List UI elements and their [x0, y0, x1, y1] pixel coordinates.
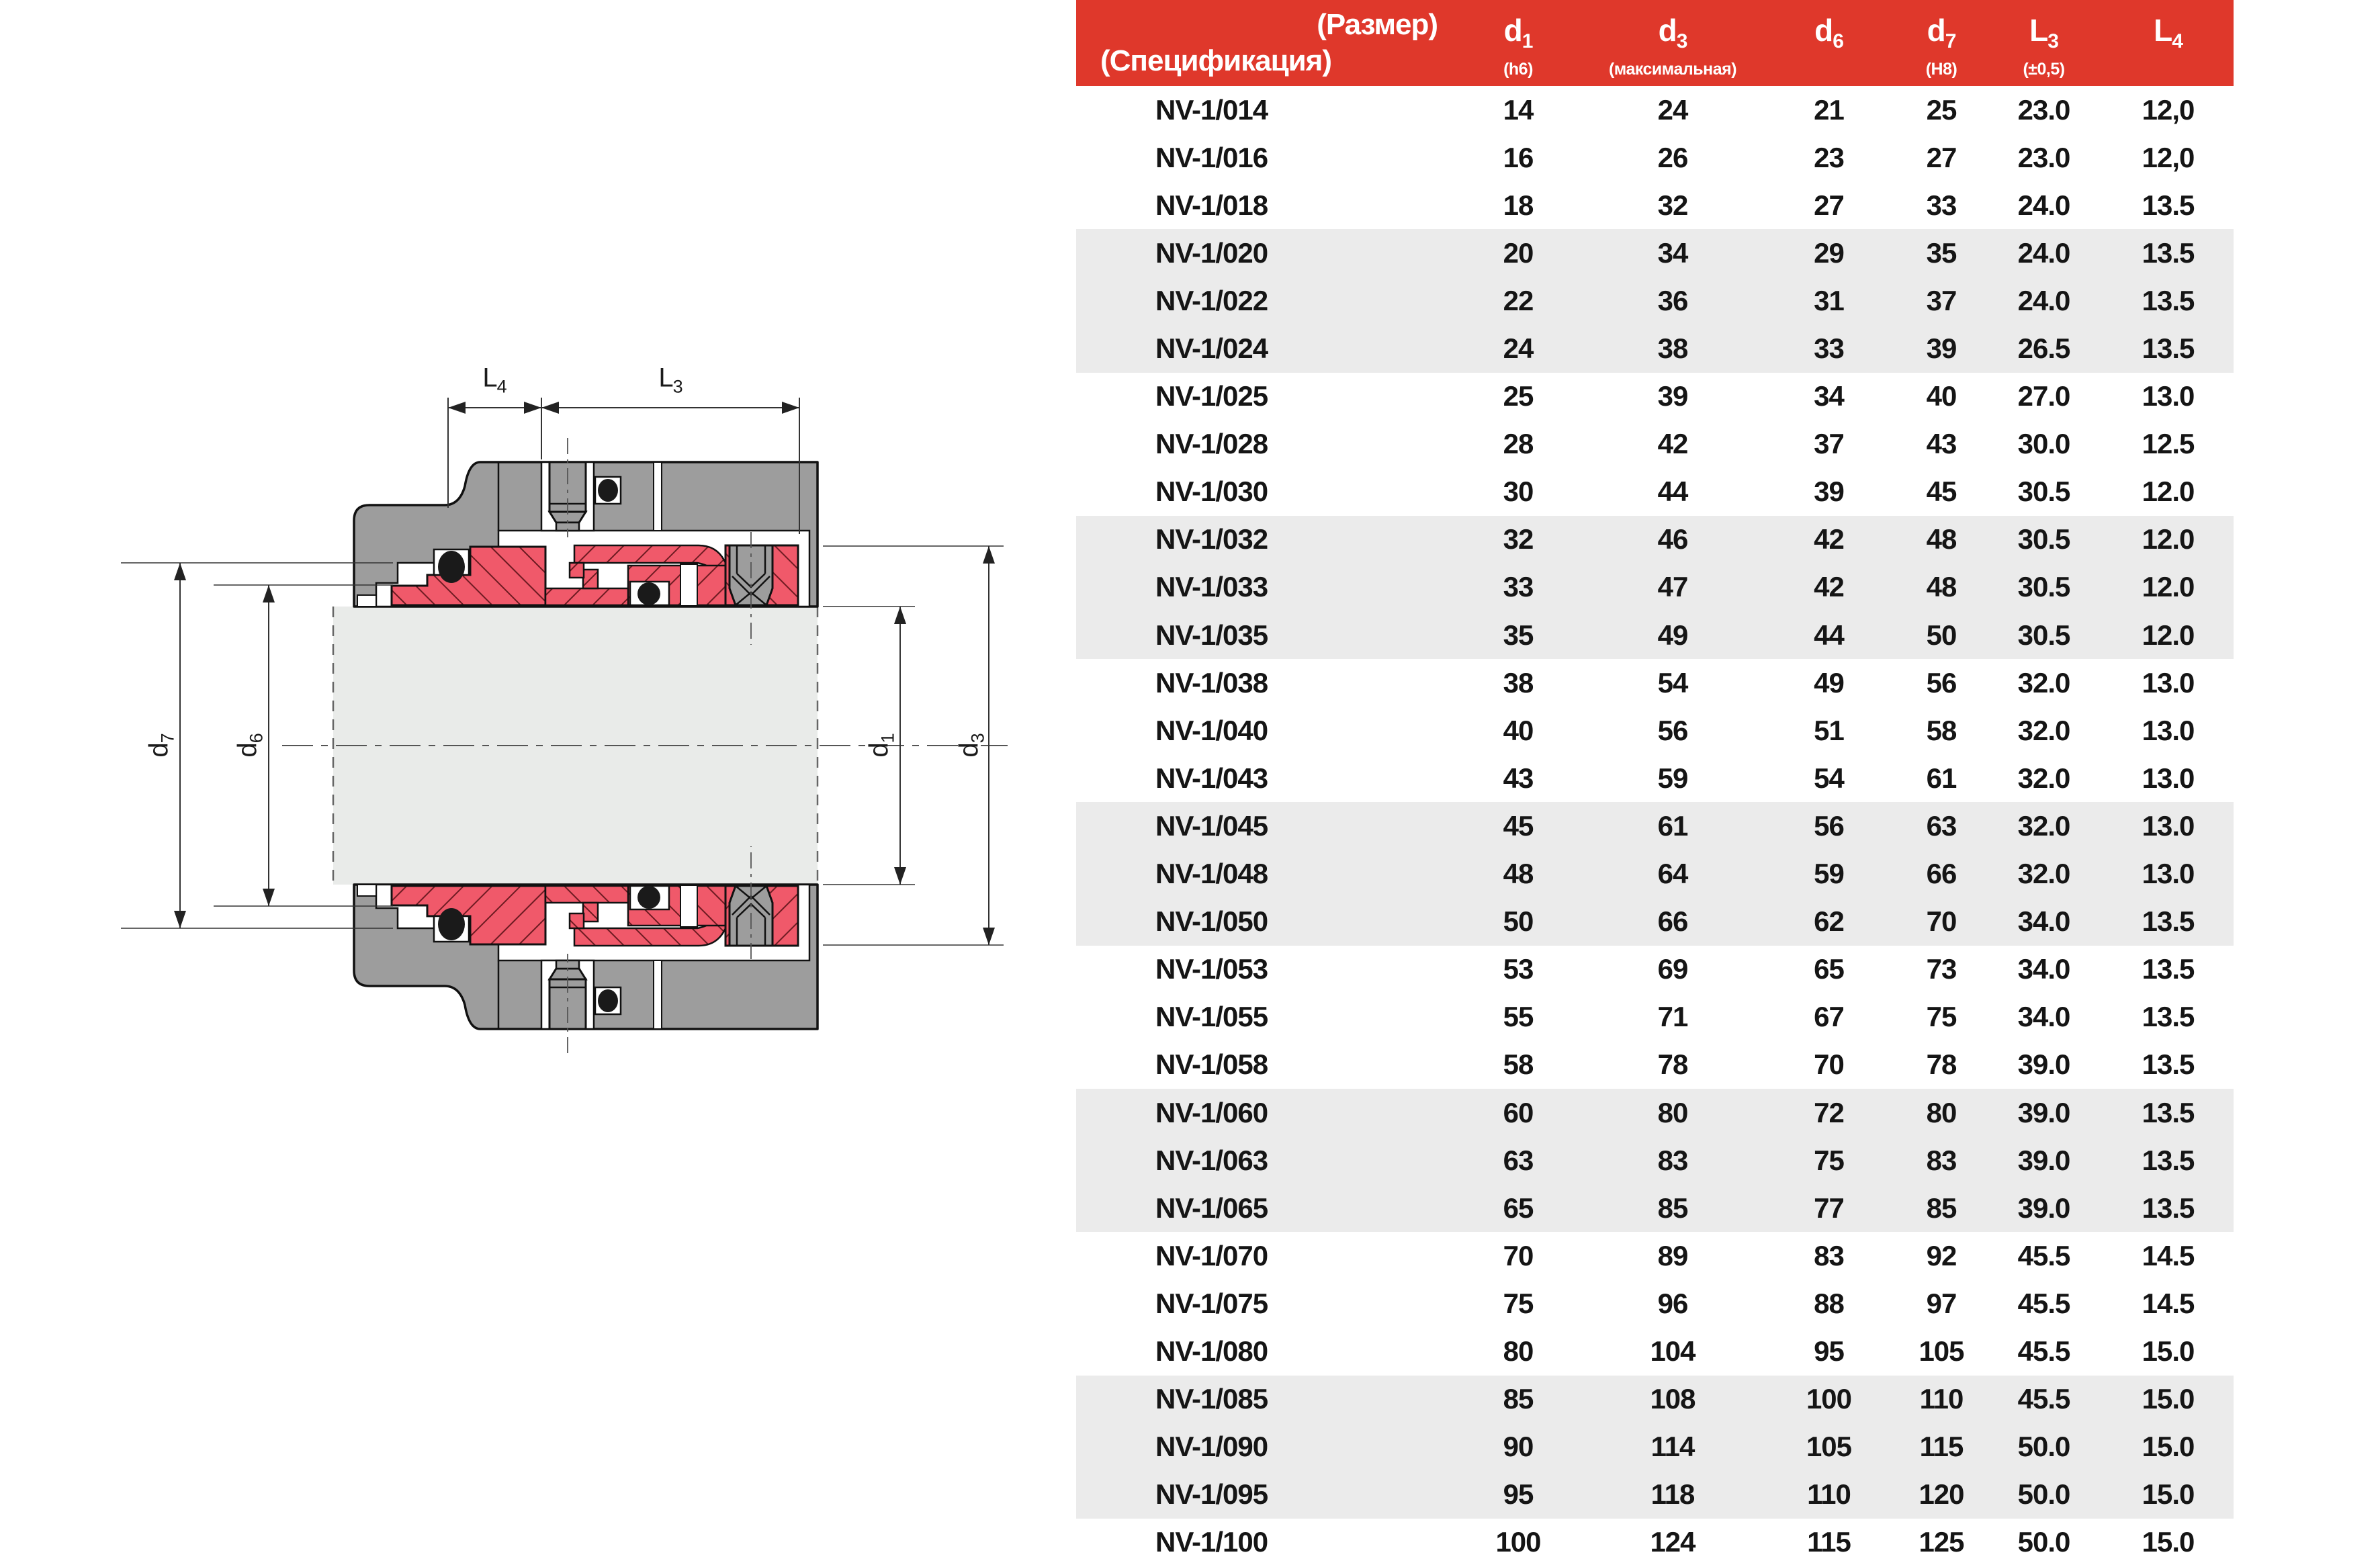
dim-label-L4: L4 [482, 363, 506, 398]
table-row: NV-1/080801049510545.515.0 [1076, 1327, 2234, 1375]
cell-d6: 67 [1760, 1001, 1898, 1033]
cell-size: NV-1/038 [1076, 667, 1451, 699]
cell-d1: 55 [1451, 1001, 1585, 1033]
cell-d3: 118 [1585, 1478, 1760, 1511]
cell-d3: 24 [1585, 94, 1760, 126]
cell-d7: 125 [1898, 1526, 1985, 1558]
cell-l3: 39.0 [1985, 1097, 2103, 1129]
cell-d3: 108 [1585, 1383, 1760, 1415]
cell-l4: 15.0 [2103, 1526, 2234, 1558]
cell-d1: 22 [1451, 285, 1585, 317]
cell-d3: 36 [1585, 285, 1760, 317]
cell-size: NV-1/050 [1076, 905, 1451, 938]
cell-l4: 12.5 [2103, 428, 2234, 460]
cell-d1: 90 [1451, 1431, 1585, 1463]
cell-d6: 62 [1760, 905, 1898, 938]
cell-size: NV-1/058 [1076, 1048, 1451, 1081]
cell-size: NV-1/014 [1076, 94, 1451, 126]
dim-label-L3: L3 [658, 363, 682, 398]
cell-size: NV-1/060 [1076, 1097, 1451, 1129]
dim-label-d1: d1 [865, 733, 899, 757]
cell-l3: 39.0 [1985, 1048, 2103, 1081]
cell-d6: 70 [1760, 1048, 1898, 1081]
cell-d6: 115 [1760, 1526, 1898, 1558]
cell-l4: 13.5 [2103, 189, 2234, 222]
cell-size: NV-1/045 [1076, 810, 1451, 842]
cell-size: NV-1/035 [1076, 619, 1451, 652]
cell-l3: 50.0 [1985, 1526, 2103, 1558]
cell-size: NV-1/033 [1076, 571, 1451, 603]
cell-d3: 104 [1585, 1335, 1760, 1368]
cell-l4: 13.5 [2103, 953, 2234, 985]
cell-size: NV-1/063 [1076, 1145, 1451, 1177]
cell-l4: 13.5 [2103, 1097, 2234, 1129]
cell-d7: 37 [1898, 285, 1985, 317]
table-row: NV-1/0555571677534.013.5 [1076, 993, 2234, 1041]
cell-size: NV-1/024 [1076, 332, 1451, 365]
header-size-line1: (Размер) [1100, 7, 1438, 43]
cell-l4: 12.0 [2103, 571, 2234, 603]
cell-d7: 33 [1898, 189, 1985, 222]
cell-d6: 88 [1760, 1288, 1898, 1320]
cell-l4: 12.0 [2103, 619, 2234, 652]
table-row: NV-1/0202034293524.013.5 [1076, 229, 2234, 277]
cell-l3: 45.5 [1985, 1383, 2103, 1415]
cell-d3: 49 [1585, 619, 1760, 652]
cell-l4: 15.0 [2103, 1431, 2234, 1463]
table-row: NV-1/0282842374330.012.5 [1076, 420, 2234, 468]
cell-d7: 48 [1898, 571, 1985, 603]
cell-l3: 30.5 [1985, 619, 2103, 652]
cell-d7: 97 [1898, 1288, 1985, 1320]
cell-size: NV-1/025 [1076, 380, 1451, 412]
cell-l4: 13.5 [2103, 1145, 2234, 1177]
cell-d1: 33 [1451, 571, 1585, 603]
cell-d1: 100 [1451, 1526, 1585, 1558]
cell-l3: 39.0 [1985, 1145, 2103, 1177]
table-row: NV-1/0606080728039.013.5 [1076, 1089, 2234, 1136]
cell-d3: 44 [1585, 476, 1760, 508]
cell-d7: 43 [1898, 428, 1985, 460]
cell-l4: 13.5 [2103, 1192, 2234, 1224]
cell-l4: 13.5 [2103, 237, 2234, 269]
cell-d6: 21 [1760, 94, 1898, 126]
header-col-L4: L4 [2103, 0, 2234, 86]
cell-d7: 78 [1898, 1048, 1985, 1081]
header-col-d6: d6 [1760, 0, 1898, 86]
cell-l3: 30.5 [1985, 523, 2103, 555]
cell-d6: 56 [1760, 810, 1898, 842]
cell-d3: 47 [1585, 571, 1760, 603]
cell-l4: 12.0 [2103, 523, 2234, 555]
cell-l4: 13.0 [2103, 762, 2234, 795]
cell-d1: 85 [1451, 1383, 1585, 1415]
cell-d1: 25 [1451, 380, 1585, 412]
cell-size: NV-1/020 [1076, 237, 1451, 269]
cell-l4: 12,0 [2103, 142, 2234, 174]
header-col-d3: d3 (максимальная) [1585, 0, 1760, 86]
table-row: NV-1/0505066627034.013.5 [1076, 898, 2234, 946]
table-row: NV-1/0141424212523.012,0 [1076, 86, 2234, 134]
cell-l3: 32.0 [1985, 667, 2103, 699]
table-header: (Размер) (Спецификация) d1 (h6) d3 (макс… [1076, 0, 2234, 86]
cell-d6: 75 [1760, 1145, 1898, 1177]
cell-l3: 24.0 [1985, 237, 2103, 269]
cell-l4: 12.0 [2103, 476, 2234, 508]
cell-d1: 95 [1451, 1478, 1585, 1511]
cell-l3: 32.0 [1985, 810, 2103, 842]
cell-d3: 114 [1585, 1431, 1760, 1463]
cell-d3: 78 [1585, 1048, 1760, 1081]
cell-l4: 13.0 [2103, 715, 2234, 747]
cell-d7: 56 [1898, 667, 1985, 699]
dim-label-d6: d6 [233, 733, 267, 757]
cell-d7: 73 [1898, 953, 1985, 985]
table-row: NV-1/0323246424830.512.0 [1076, 516, 2234, 564]
cell-d1: 35 [1451, 619, 1585, 652]
cell-d1: 28 [1451, 428, 1585, 460]
cell-l3: 50.0 [1985, 1478, 2103, 1511]
cell-size: NV-1/028 [1076, 428, 1451, 460]
cell-d3: 64 [1585, 858, 1760, 890]
cell-d3: 61 [1585, 810, 1760, 842]
cell-size: NV-1/032 [1076, 523, 1451, 555]
table-row: NV-1/0959511811012050.015.0 [1076, 1471, 2234, 1519]
cell-size: NV-1/065 [1076, 1192, 1451, 1224]
cell-d6: 23 [1760, 142, 1898, 174]
table-row: NV-1/0181832273324.013.5 [1076, 181, 2234, 229]
cell-d3: 54 [1585, 667, 1760, 699]
cell-l3: 34.0 [1985, 905, 2103, 938]
cell-d1: 58 [1451, 1048, 1585, 1081]
cell-d3: 80 [1585, 1097, 1760, 1129]
cell-d1: 30 [1451, 476, 1585, 508]
cell-d1: 18 [1451, 189, 1585, 222]
cell-d6: 44 [1760, 619, 1898, 652]
seal-diagram: L4 L3 d7 d6 d1 d3 [0, 0, 1142, 1567]
cell-d6: 83 [1760, 1240, 1898, 1272]
seal-cross-section-svg [0, 0, 1142, 1567]
cell-d6: 31 [1760, 285, 1898, 317]
cell-l4: 15.0 [2103, 1335, 2234, 1368]
cell-d7: 58 [1898, 715, 1985, 747]
table-row: NV-1/0161626232723.012,0 [1076, 134, 2234, 181]
cell-d3: 56 [1585, 715, 1760, 747]
cell-l4: 13.5 [2103, 285, 2234, 317]
cell-d6: 29 [1760, 237, 1898, 269]
cell-d6: 59 [1760, 858, 1898, 890]
cell-d6: 34 [1760, 380, 1898, 412]
cell-l3: 27.0 [1985, 380, 2103, 412]
cell-d1: 80 [1451, 1335, 1585, 1368]
cell-l4: 13.5 [2103, 1048, 2234, 1081]
cell-size: NV-1/085 [1076, 1383, 1451, 1415]
cell-d1: 45 [1451, 810, 1585, 842]
cell-d6: 39 [1760, 476, 1898, 508]
cell-d7: 48 [1898, 523, 1985, 555]
cell-l4: 13.5 [2103, 332, 2234, 365]
cell-d3: 124 [1585, 1526, 1760, 1558]
cell-size: NV-1/043 [1076, 762, 1451, 795]
cell-d3: 69 [1585, 953, 1760, 985]
table-row: NV-1/0585878707839.013.5 [1076, 1041, 2234, 1089]
table-row: NV-1/0383854495632.013.0 [1076, 659, 2234, 707]
cell-l4: 13.0 [2103, 810, 2234, 842]
cell-d7: 39 [1898, 332, 1985, 365]
cell-d7: 92 [1898, 1240, 1985, 1272]
table-row: NV-1/0404056515832.013.0 [1076, 707, 2234, 754]
cell-d3: 66 [1585, 905, 1760, 938]
cell-d6: 27 [1760, 189, 1898, 222]
cell-d3: 96 [1585, 1288, 1760, 1320]
cell-l3: 50.0 [1985, 1431, 2103, 1463]
cell-size: NV-1/100 [1076, 1526, 1451, 1558]
cell-d7: 110 [1898, 1383, 1985, 1415]
cell-d6: 65 [1760, 953, 1898, 985]
cell-d6: 37 [1760, 428, 1898, 460]
cell-d1: 75 [1451, 1288, 1585, 1320]
cell-d7: 80 [1898, 1097, 1985, 1129]
table-row: NV-1/0656585778539.013.5 [1076, 1184, 2234, 1232]
cell-l3: 45.5 [1985, 1240, 2103, 1272]
table-row: NV-1/0434359546132.013.0 [1076, 754, 2234, 802]
cell-d3: 71 [1585, 1001, 1760, 1033]
table-row: NV-1/0333347424830.512.0 [1076, 564, 2234, 611]
cell-l4: 15.0 [2103, 1478, 2234, 1511]
cell-l3: 45.5 [1985, 1335, 2103, 1368]
cell-l3: 45.5 [1985, 1288, 2103, 1320]
cell-l3: 34.0 [1985, 1001, 2103, 1033]
table-row: NV-1/0757596889745.514.5 [1076, 1280, 2234, 1327]
cell-l4: 13.0 [2103, 858, 2234, 890]
cell-d6: 100 [1760, 1383, 1898, 1415]
table-row: NV-1/0707089839245.514.5 [1076, 1232, 2234, 1280]
dim-label-d3: d3 [955, 733, 989, 757]
cell-d1: 38 [1451, 667, 1585, 699]
cell-d3: 46 [1585, 523, 1760, 555]
cell-d1: 65 [1451, 1192, 1585, 1224]
cell-l3: 32.0 [1985, 715, 2103, 747]
cell-l3: 24.0 [1985, 285, 2103, 317]
cell-l3: 30.5 [1985, 476, 2103, 508]
cell-d6: 72 [1760, 1097, 1898, 1129]
cell-size: NV-1/022 [1076, 285, 1451, 317]
table-row: NV-1/0535369657334.013.5 [1076, 946, 2234, 993]
header-col-d1: d1 (h6) [1451, 0, 1585, 86]
cell-d3: 34 [1585, 237, 1760, 269]
table-row: NV-1/0303044394530.512.0 [1076, 468, 2234, 516]
cell-d7: 35 [1898, 237, 1985, 269]
cell-l4: 14.5 [2103, 1240, 2234, 1272]
header-col-d7: d7 (H8) [1898, 0, 1985, 86]
header-size-line2: (Спецификация) [1100, 43, 1438, 79]
cell-l4: 12,0 [2103, 94, 2234, 126]
table-row: NV-1/0909011410511550.015.0 [1076, 1423, 2234, 1471]
cell-size: NV-1/090 [1076, 1431, 1451, 1463]
table-row: NV-1/0484864596632.013.0 [1076, 850, 2234, 898]
cell-d3: 83 [1585, 1145, 1760, 1177]
cell-l4: 14.5 [2103, 1288, 2234, 1320]
cell-l4: 13.5 [2103, 1001, 2234, 1033]
table-row: NV-1/0858510810011045.515.0 [1076, 1376, 2234, 1423]
cell-d6: 95 [1760, 1335, 1898, 1368]
cell-d7: 61 [1898, 762, 1985, 795]
cell-l3: 30.0 [1985, 428, 2103, 460]
cell-size: NV-1/095 [1076, 1478, 1451, 1511]
cell-d3: 59 [1585, 762, 1760, 795]
cell-d6: 49 [1760, 667, 1898, 699]
cell-d7: 115 [1898, 1431, 1985, 1463]
cell-d7: 63 [1898, 810, 1985, 842]
cell-size: NV-1/053 [1076, 953, 1451, 985]
cell-size: NV-1/048 [1076, 858, 1451, 890]
cell-size: NV-1/080 [1076, 1335, 1451, 1368]
cell-d7: 85 [1898, 1192, 1985, 1224]
cell-l4: 13.0 [2103, 380, 2234, 412]
cell-d7: 83 [1898, 1145, 1985, 1177]
cell-d1: 43 [1451, 762, 1585, 795]
cell-d6: 51 [1760, 715, 1898, 747]
cell-d7: 45 [1898, 476, 1985, 508]
cell-size: NV-1/016 [1076, 142, 1451, 174]
cell-d1: 40 [1451, 715, 1585, 747]
cell-d1: 63 [1451, 1145, 1585, 1177]
cell-d6: 54 [1760, 762, 1898, 795]
cell-d7: 105 [1898, 1335, 1985, 1368]
cell-d7: 75 [1898, 1001, 1985, 1033]
cell-l3: 24.0 [1985, 189, 2103, 222]
table-row: NV-1/0353549445030.512.0 [1076, 611, 2234, 659]
cell-d7: 27 [1898, 142, 1985, 174]
cell-d1: 16 [1451, 142, 1585, 174]
cell-d7: 66 [1898, 858, 1985, 890]
cell-size: NV-1/018 [1076, 189, 1451, 222]
catalog-page: L4 L3 d7 d6 d1 d3 (Размер) (Спецификация… [0, 0, 2380, 1567]
cell-d7: 120 [1898, 1478, 1985, 1511]
cell-d3: 38 [1585, 332, 1760, 365]
cell-size: NV-1/070 [1076, 1240, 1451, 1272]
cell-d1: 60 [1451, 1097, 1585, 1129]
cell-l3: 23.0 [1985, 94, 2103, 126]
cell-size: NV-1/075 [1076, 1288, 1451, 1320]
dim-label-d7: d7 [144, 733, 179, 757]
cell-d1: 53 [1451, 953, 1585, 985]
cell-l4: 15.0 [2103, 1383, 2234, 1415]
table-row: NV-1/0252539344027.013.0 [1076, 373, 2234, 420]
cell-l4: 13.5 [2103, 905, 2234, 938]
cell-d3: 39 [1585, 380, 1760, 412]
table-row: NV-1/10010012411512550.015.0 [1076, 1519, 2234, 1566]
cell-d1: 32 [1451, 523, 1585, 555]
cell-d3: 32 [1585, 189, 1760, 222]
cell-d7: 25 [1898, 94, 1985, 126]
cell-d6: 42 [1760, 571, 1898, 603]
cell-d3: 26 [1585, 142, 1760, 174]
cell-size: NV-1/040 [1076, 715, 1451, 747]
table-row: NV-1/0454561566332.013.0 [1076, 802, 2234, 850]
cell-d7: 40 [1898, 380, 1985, 412]
cell-size: NV-1/030 [1076, 476, 1451, 508]
cell-d6: 105 [1760, 1431, 1898, 1463]
cell-l3: 34.0 [1985, 953, 2103, 985]
cell-d6: 42 [1760, 523, 1898, 555]
cell-d3: 85 [1585, 1192, 1760, 1224]
cell-d6: 77 [1760, 1192, 1898, 1224]
cell-d6: 110 [1760, 1478, 1898, 1511]
header-size-column: (Размер) (Спецификация) [1076, 0, 1451, 86]
cell-d1: 48 [1451, 858, 1585, 890]
cell-l3: 26.5 [1985, 332, 2103, 365]
table-rows: NV-1/0141424212523.012,0NV-1/01616262327… [1076, 86, 2234, 1566]
cell-d3: 89 [1585, 1240, 1760, 1272]
cell-d1: 50 [1451, 905, 1585, 938]
cell-l3: 30.5 [1985, 571, 2103, 603]
cell-l3: 39.0 [1985, 1192, 2103, 1224]
table-row: NV-1/0636383758339.013.5 [1076, 1136, 2234, 1184]
cell-d1: 70 [1451, 1240, 1585, 1272]
cell-d1: 20 [1451, 237, 1585, 269]
table-row: NV-1/0222236313724.013.5 [1076, 277, 2234, 324]
cell-d1: 24 [1451, 332, 1585, 365]
cell-l3: 32.0 [1985, 858, 2103, 890]
cell-l3: 32.0 [1985, 762, 2103, 795]
cell-d7: 70 [1898, 905, 1985, 938]
cell-size: NV-1/055 [1076, 1001, 1451, 1033]
header-col-L3: L3 (±0,5) [1985, 0, 2103, 86]
cell-d6: 33 [1760, 332, 1898, 365]
cell-d7: 50 [1898, 619, 1985, 652]
cell-l3: 23.0 [1985, 142, 2103, 174]
cell-d1: 14 [1451, 94, 1585, 126]
cell-d3: 42 [1585, 428, 1760, 460]
cell-l4: 13.0 [2103, 667, 2234, 699]
table-row: NV-1/0242438333926.513.5 [1076, 324, 2234, 372]
